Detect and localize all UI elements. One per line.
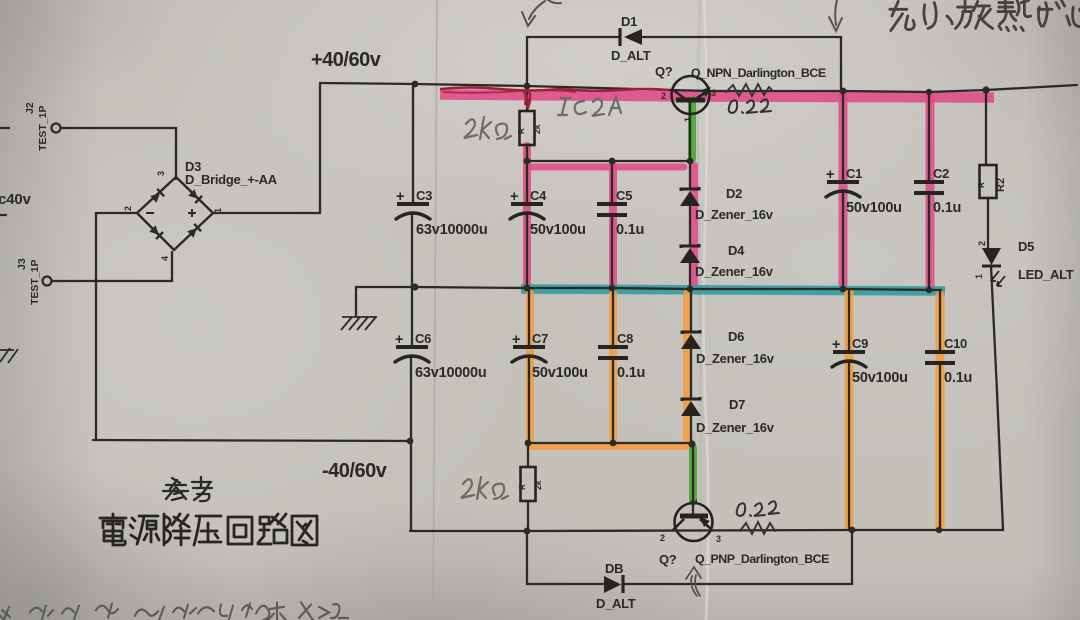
svg-text:0.1u: 0.1u xyxy=(933,200,961,216)
svg-text:C5: C5 xyxy=(616,188,632,203)
svg-text:0.1u: 0.1u xyxy=(617,365,645,381)
svg-text:R: R xyxy=(977,182,986,188)
svg-text:+: + xyxy=(396,189,404,205)
svg-text:1: 1 xyxy=(974,274,984,279)
svg-text:+: + xyxy=(510,189,518,205)
svg-text:Q_PNP_Darlington_BCE: Q_PNP_Darlington_BCE xyxy=(695,552,829,566)
svg-text:2: 2 xyxy=(660,533,665,543)
svg-text:1: 1 xyxy=(213,208,223,213)
svg-text:D1: D1 xyxy=(621,14,637,29)
svg-text:J2: J2 xyxy=(24,102,36,114)
svg-text:ac40v: ac40v xyxy=(0,191,32,208)
svg-text:1: 1 xyxy=(683,117,693,122)
svg-text:2: 2 xyxy=(977,241,987,246)
svg-text:C10: C10 xyxy=(944,336,967,351)
svg-text:2k: 2k xyxy=(532,124,542,134)
svg-text:Q_NPN_Darlington_BCE: Q_NPN_Darlington_BCE xyxy=(691,66,826,80)
svg-text:D4: D4 xyxy=(728,243,745,258)
svg-text:D6: D6 xyxy=(728,329,744,344)
svg-text:4: 4 xyxy=(160,256,170,261)
svg-text:-40/60v: -40/60v xyxy=(322,460,388,482)
svg-text:+: + xyxy=(832,337,840,353)
svg-text:C9: C9 xyxy=(852,336,868,351)
svg-text:C4: C4 xyxy=(530,188,547,203)
svg-text:50v100u: 50v100u xyxy=(530,222,586,238)
svg-text:Q?: Q? xyxy=(659,552,677,567)
svg-text:2: 2 xyxy=(661,91,666,101)
svg-text:3: 3 xyxy=(156,171,166,176)
svg-text:3: 3 xyxy=(716,534,721,544)
svg-text:J3: J3 xyxy=(16,258,28,270)
svg-text:2k: 2k xyxy=(533,480,543,490)
svg-text:D_Zener_16v: D_Zener_16v xyxy=(696,351,775,366)
svg-text:D_Zener_16v: D_Zener_16v xyxy=(696,420,775,435)
svg-text:3: 3 xyxy=(711,88,716,98)
svg-text:LED_ALT: LED_ALT xyxy=(1018,267,1074,282)
svg-text:Q?: Q? xyxy=(655,64,673,79)
svg-text:1: 1 xyxy=(689,499,699,504)
svg-text:50v100u: 50v100u xyxy=(846,200,902,216)
svg-text:+40/60v: +40/60v xyxy=(311,49,382,71)
svg-text:2: 2 xyxy=(123,206,133,211)
svg-text:D2: D2 xyxy=(726,186,742,201)
svg-text:D_ALT: D_ALT xyxy=(611,48,651,63)
svg-text:0.1u: 0.1u xyxy=(944,370,972,386)
svg-text:R2: R2 xyxy=(995,178,1007,192)
svg-text:+: + xyxy=(395,332,403,348)
svg-text:C1: C1 xyxy=(846,166,862,181)
svg-text:D_Bridge_+-AA: D_Bridge_+-AA xyxy=(185,172,278,187)
svg-text:TEST_1P: TEST_1P xyxy=(29,259,41,305)
svg-text:50v100u: 50v100u xyxy=(852,370,908,386)
svg-text:C8: C8 xyxy=(617,331,633,346)
svg-text:C7: C7 xyxy=(532,331,548,346)
svg-text:C3: C3 xyxy=(416,188,432,203)
svg-text:TEST_1P: TEST_1P xyxy=(37,105,49,151)
svg-text:63v10000u: 63v10000u xyxy=(416,222,488,238)
svg-text:R: R xyxy=(518,484,527,490)
svg-text:C6: C6 xyxy=(415,331,431,346)
svg-text:+: + xyxy=(826,167,834,183)
svg-text:D7: D7 xyxy=(729,397,745,412)
svg-text:D_ALT: D_ALT xyxy=(596,596,636,611)
svg-text:DB: DB xyxy=(605,561,623,576)
svg-text:C2: C2 xyxy=(933,166,949,181)
svg-text:D5: D5 xyxy=(1018,239,1034,254)
svg-text:R: R xyxy=(517,128,526,134)
svg-text:D_Zener_16v: D_Zener_16v xyxy=(695,264,774,279)
svg-text:63v10000u: 63v10000u xyxy=(415,365,487,381)
svg-text:+: + xyxy=(512,332,520,348)
svg-text:0.1u: 0.1u xyxy=(616,222,644,238)
svg-text:50v100u: 50v100u xyxy=(532,365,588,381)
svg-text:D_Zener_16v: D_Zener_16v xyxy=(695,207,774,222)
